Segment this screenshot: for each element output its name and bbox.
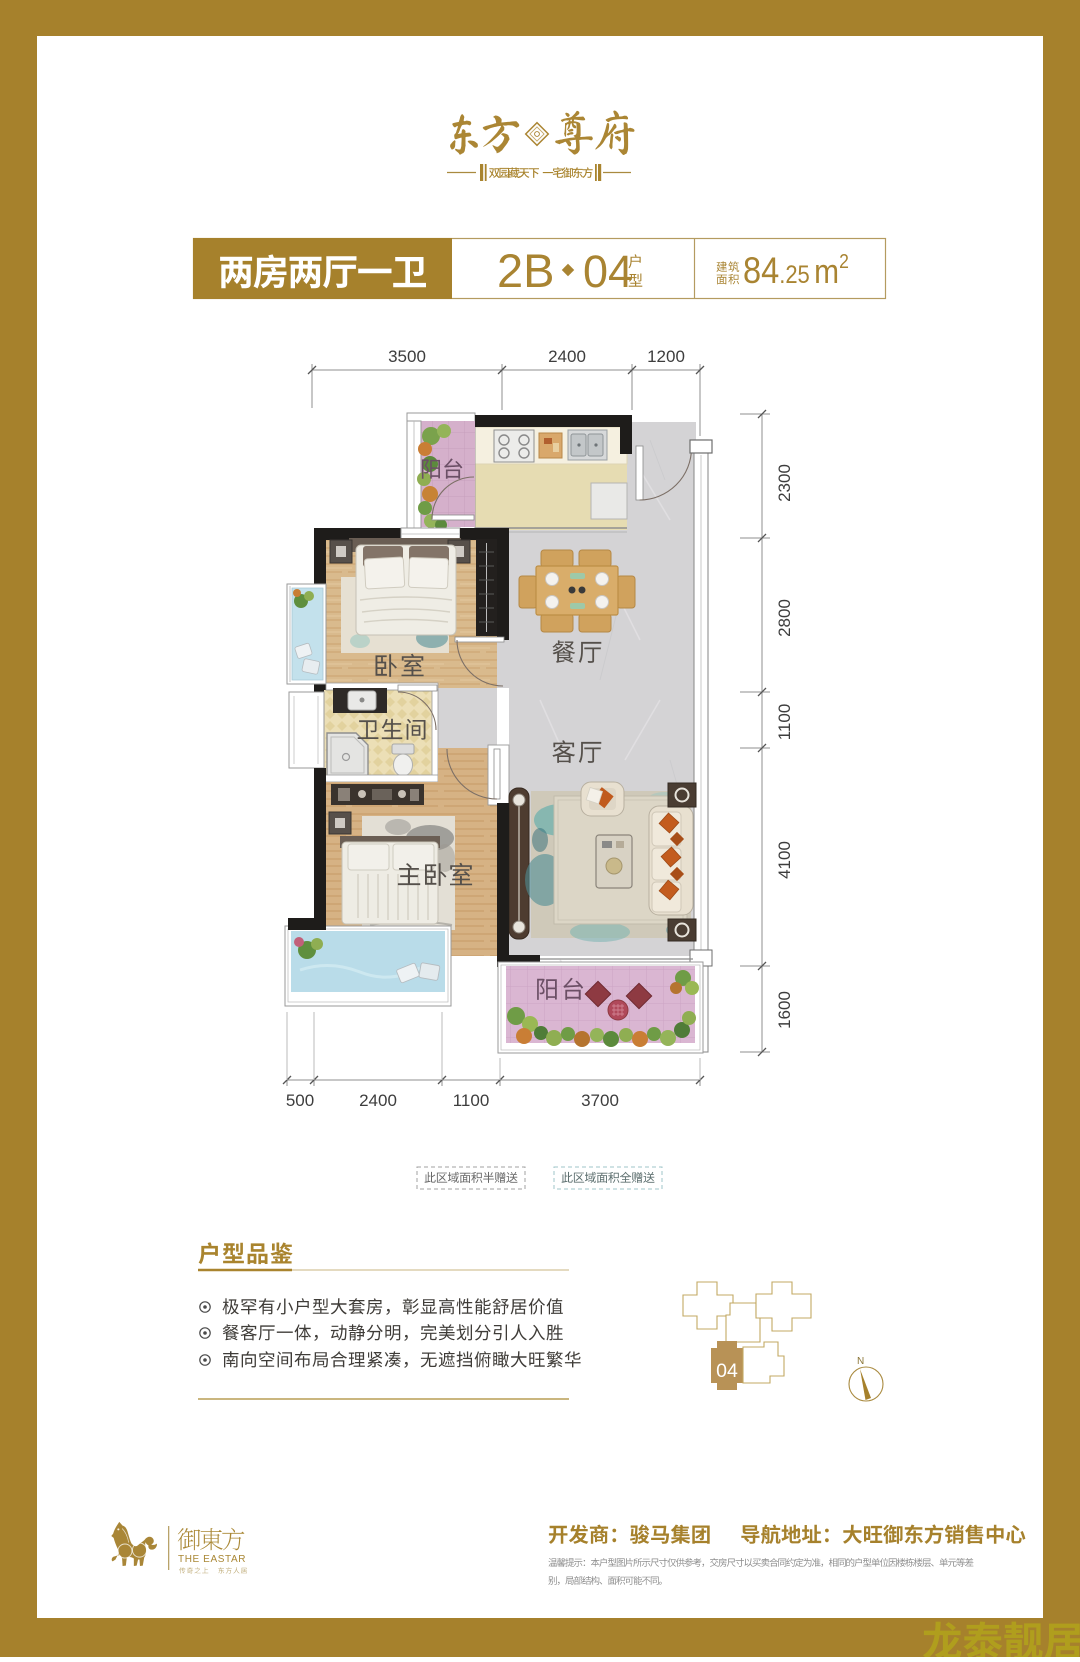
svg-text:3500: 3500 xyxy=(388,347,426,366)
svg-text:2B: 2B xyxy=(497,244,555,297)
svg-text:1100: 1100 xyxy=(775,704,794,741)
svg-text:04: 04 xyxy=(583,246,633,297)
svg-text:N: N xyxy=(857,1356,864,1367)
svg-text:4100: 4100 xyxy=(775,841,794,879)
svg-text:500: 500 xyxy=(286,1091,314,1110)
svg-text:1600: 1600 xyxy=(775,991,794,1029)
svg-text:1100: 1100 xyxy=(453,1091,490,1110)
svg-text:2300: 2300 xyxy=(775,464,794,502)
svg-text:3700: 3700 xyxy=(581,1091,619,1110)
svg-text:04: 04 xyxy=(716,1360,738,1382)
svg-text:2400: 2400 xyxy=(359,1091,397,1110)
svg-text:2400: 2400 xyxy=(548,347,586,366)
svg-text:1200: 1200 xyxy=(647,347,685,366)
svg-text:THE EASTAR: THE EASTAR xyxy=(178,1554,246,1565)
svg-text:2800: 2800 xyxy=(775,599,794,637)
